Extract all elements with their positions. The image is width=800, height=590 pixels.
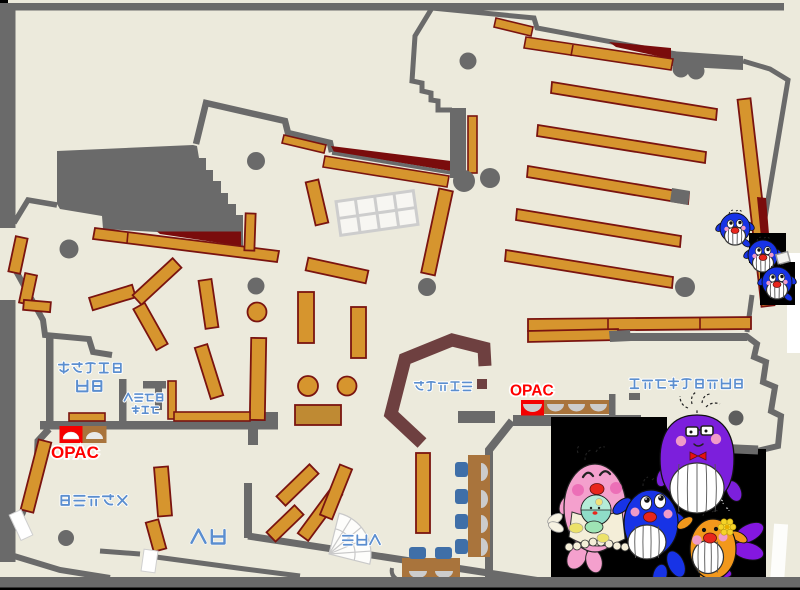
svg-text:OPAC: OPAC bbox=[510, 383, 554, 400]
svg-text:OPAC: OPAC bbox=[51, 443, 99, 462]
